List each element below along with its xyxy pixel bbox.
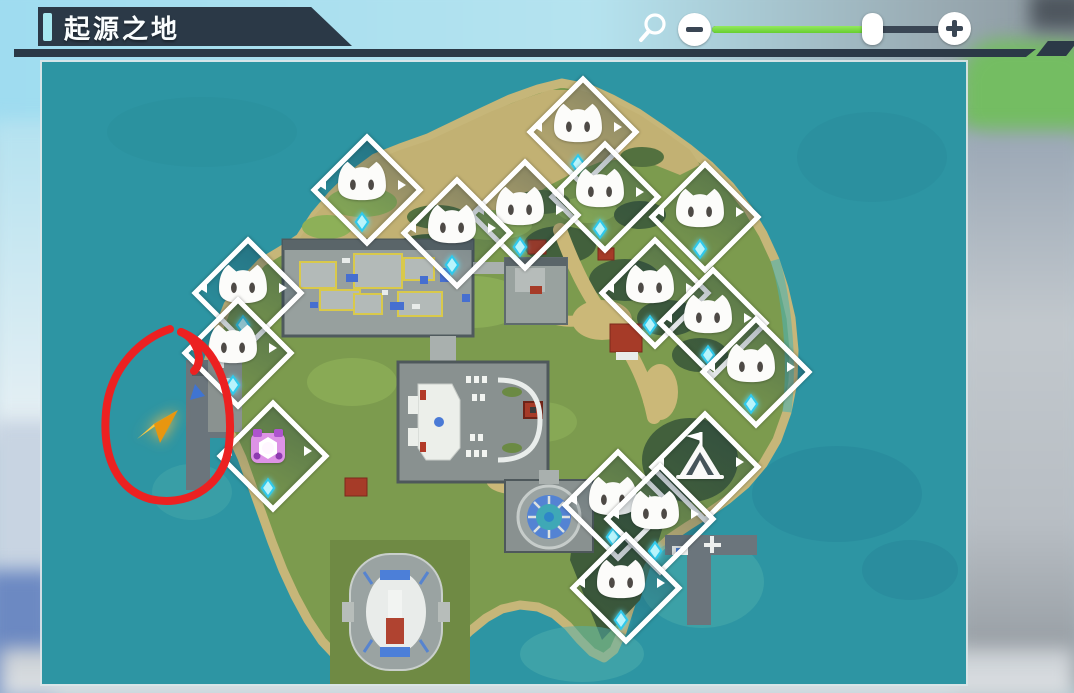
cat-icon bbox=[624, 486, 686, 536]
marker-right-notch bbox=[488, 223, 496, 233]
marker-left-notch bbox=[569, 495, 577, 505]
gem-icon bbox=[261, 478, 276, 503]
marker-left-notch bbox=[611, 509, 619, 519]
game-screen: { "header": { "title": "起源之地", "panel_co… bbox=[0, 0, 1074, 693]
header-underline bbox=[14, 49, 1036, 57]
cat-icon bbox=[590, 555, 652, 605]
cat-icon bbox=[669, 184, 731, 234]
map-marker-portal[interactable] bbox=[217, 400, 319, 502]
marker-layer bbox=[42, 62, 966, 684]
marker-right-notch bbox=[304, 446, 312, 456]
title-accent-bar bbox=[43, 13, 52, 41]
marker-right-notch bbox=[279, 283, 287, 293]
zoom-out-button[interactable] bbox=[678, 13, 711, 46]
gem-icon bbox=[355, 212, 370, 237]
minus-icon bbox=[686, 27, 703, 32]
marker-right-notch bbox=[636, 187, 644, 197]
cat-icon bbox=[569, 164, 631, 214]
marker-left-notch bbox=[664, 313, 672, 323]
marker-right-notch bbox=[657, 578, 665, 588]
map-marker-cat[interactable] bbox=[570, 532, 672, 634]
cat-icon bbox=[202, 320, 264, 370]
marker-right-notch bbox=[269, 343, 277, 353]
zoom-slider-thumb[interactable] bbox=[862, 13, 883, 45]
zoom-slider-fill bbox=[712, 26, 872, 33]
map-marker-cat[interactable] bbox=[700, 316, 802, 418]
marker-right-notch bbox=[614, 122, 622, 132]
portal-icon bbox=[242, 420, 294, 476]
marker-left-notch bbox=[534, 122, 542, 132]
plus-icon-v bbox=[952, 20, 957, 37]
marker-left-notch bbox=[199, 283, 207, 293]
marker-left-notch bbox=[606, 283, 614, 293]
marker-right-notch bbox=[736, 457, 744, 467]
map-marker-cat[interactable] bbox=[182, 297, 284, 399]
marker-left-notch bbox=[224, 446, 232, 456]
zoom-in-button[interactable] bbox=[938, 12, 971, 45]
page-title: 起源之地 bbox=[64, 9, 180, 46]
marker-left-notch bbox=[707, 362, 715, 372]
magnifier-icon bbox=[636, 10, 670, 46]
gem-icon bbox=[614, 610, 629, 635]
cat-icon bbox=[421, 200, 483, 250]
cat-icon bbox=[331, 157, 393, 207]
gem-icon bbox=[445, 255, 460, 280]
marker-right-notch bbox=[691, 509, 699, 519]
marker-right-notch bbox=[787, 362, 795, 372]
world-map[interactable] bbox=[42, 62, 966, 684]
marker-left-notch bbox=[318, 180, 326, 190]
marker-left-notch bbox=[189, 343, 197, 353]
zoom-slider[interactable] bbox=[712, 26, 941, 33]
gem-icon bbox=[643, 315, 658, 340]
cat-icon bbox=[720, 339, 782, 389]
marker-left-notch bbox=[577, 578, 585, 588]
map-marker-cat[interactable] bbox=[401, 177, 503, 279]
marker-right-notch bbox=[556, 205, 564, 215]
marker-left-notch bbox=[408, 223, 416, 233]
map-marker-cat[interactable] bbox=[311, 134, 413, 236]
marker-right-notch bbox=[736, 207, 744, 217]
marker-left-notch bbox=[656, 207, 664, 217]
gem-icon bbox=[513, 237, 528, 262]
gem-icon bbox=[226, 375, 241, 400]
